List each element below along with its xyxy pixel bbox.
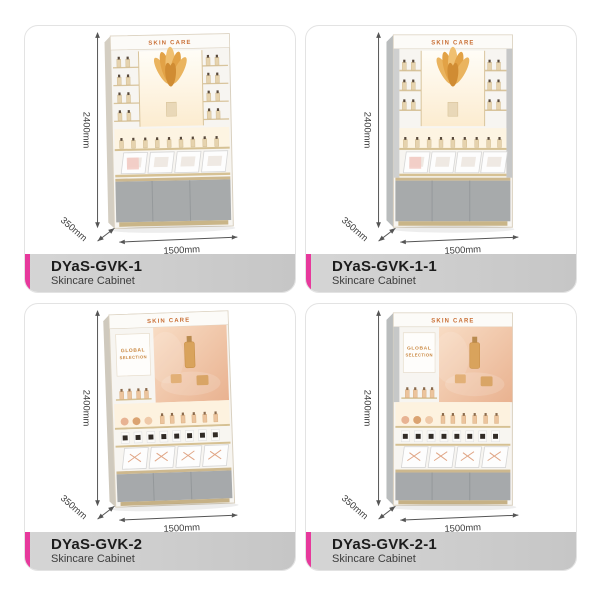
dimension-height: 2400mm — [82, 32, 100, 228]
dimension-depth: 350mm — [59, 214, 115, 243]
product-model: DYaS-GVK-2-1 — [332, 536, 437, 554]
depth-dimension-label: 350mm — [340, 492, 371, 521]
dimension-width: 1500mm — [119, 235, 237, 255]
cabinet-illustration: SKIN CARE — [321, 25, 561, 255]
dimension-width: 1500mm — [119, 513, 237, 533]
skin-care-signage: SKIN CARE — [431, 40, 474, 46]
box-row — [395, 428, 510, 446]
cabinet-illustration: SKIN CARE GLOBAL SELECTION — [321, 303, 561, 533]
cabinet-render: SKIN CARE — [386, 35, 514, 233]
artwork-panel — [138, 46, 203, 127]
depth-dimension-label: 350mm — [59, 214, 90, 243]
cabinet-figure: SKIN CARE GLOBAL SELECTION — [306, 304, 576, 532]
backlit-shelf-band — [114, 400, 230, 430]
cabinet-illustration: SKIN CARE GLOBAL SELECTION — [40, 303, 280, 533]
product-card-gvk-1-1[interactable]: SKIN CARE — [305, 25, 577, 293]
sign-line-1: GLOBAL — [407, 346, 431, 352]
height-dimension-label: 2400mm — [82, 390, 93, 427]
cabinet-figure: SKIN CARE GLOBAL SELECTION — [25, 304, 295, 532]
sign-line-2: SELECTION — [120, 354, 148, 360]
poster-panel — [433, 327, 512, 402]
cabinet-render: SKIN CARE — [104, 34, 235, 234]
global-selection-sign: GLOBAL SELECTION — [116, 333, 151, 376]
product-card-gvk-2-1[interactable]: SKIN CARE GLOBAL SELECTION — [305, 303, 577, 571]
backlit-shelf-band — [399, 128, 506, 150]
backlit-shelf-band — [114, 127, 229, 151]
cabinet-figure: SKIN CARE — [25, 26, 295, 254]
product-label-bar: DYaS-GVK-1-1 Skincare Cabinet — [306, 254, 576, 292]
product-card-gvk-1[interactable]: SKIN CARE — [24, 25, 296, 293]
skin-care-signage: SKIN CARE — [431, 318, 474, 324]
product-model: DYaS-GVK-2 — [51, 536, 142, 554]
accent-stripe — [306, 532, 311, 570]
depth-dimension-label: 350mm — [340, 214, 371, 243]
dimension-width: 1500mm — [400, 513, 518, 533]
depth-dimension-label: 350mm — [59, 492, 90, 521]
height-dimension-label: 2400mm — [363, 390, 374, 427]
accent-stripe — [25, 254, 30, 292]
dimension-height: 2400mm — [363, 32, 381, 228]
cabinet-render: SKIN CARE GLOBAL SELECTION — [386, 313, 516, 511]
dimension-width: 1500mm — [400, 235, 518, 255]
artwork-panel — [421, 47, 484, 126]
product-category: Skincare Cabinet — [332, 275, 437, 288]
backlit-shelf-band — [395, 402, 510, 428]
cabinet-illustration: SKIN CARE — [40, 25, 280, 255]
product-category: Skincare Cabinet — [51, 275, 142, 288]
product-category: Skincare Cabinet — [51, 553, 142, 566]
poster-panel — [147, 325, 229, 403]
dimension-height: 2400mm — [82, 310, 100, 506]
height-dimension-label: 2400mm — [363, 112, 374, 149]
dimension-depth: 350mm — [59, 492, 115, 521]
base-cabinet — [391, 178, 514, 233]
cabinet-figure: SKIN CARE — [306, 26, 576, 254]
skin-care-signage: SKIN CARE — [148, 40, 191, 47]
cabinet-header-band: SKIN CARE — [393, 313, 512, 327]
cabinet-header-band: SKIN CARE — [393, 35, 512, 49]
product-grid: SKIN CARE — [24, 25, 577, 571]
cabinet-render: SKIN CARE GLOBAL SELECTION — [103, 311, 239, 513]
product-model: DYaS-GVK-1 — [51, 258, 142, 276]
product-label-bar: DYaS-GVK-2 Skincare Cabinet — [25, 532, 295, 570]
product-label-bar: DYaS-GVK-2-1 Skincare Cabinet — [306, 532, 576, 570]
height-dimension-label: 2400mm — [82, 112, 93, 149]
accent-stripe — [25, 532, 30, 570]
global-selection-sign: GLOBAL SELECTION — [403, 333, 435, 373]
accent-stripe — [306, 254, 311, 292]
dimension-height: 2400mm — [363, 310, 381, 506]
sign-line-1: GLOBAL — [121, 347, 146, 354]
product-model: DYaS-GVK-1-1 — [332, 258, 437, 276]
product-card-gvk-2[interactable]: SKIN CARE GLOBAL SELECTION — [24, 303, 296, 571]
product-label-bar: DYaS-GVK-1 Skincare Cabinet — [25, 254, 295, 292]
product-category: Skincare Cabinet — [332, 553, 437, 566]
sign-line-2: SELECTION — [406, 353, 433, 358]
